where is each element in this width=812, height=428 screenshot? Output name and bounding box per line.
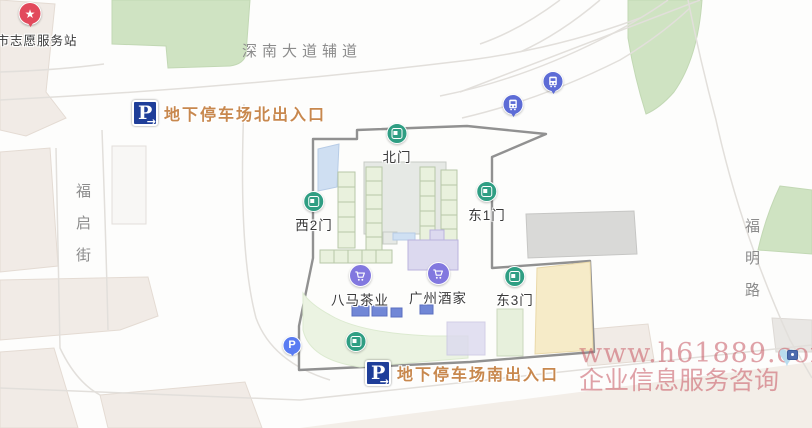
gate-icon <box>476 181 497 202</box>
volunteer-station-label: 市志愿服务站 <box>0 30 78 49</box>
gate-icon <box>346 331 367 352</box>
street-label-fuming-road: 福明路 <box>741 218 762 314</box>
gate-label: 东3门 <box>496 289 534 309</box>
shop-label: 广州酒家 <box>409 287 467 307</box>
volunteer-station-marker[interactable]: ★ <box>19 2 42 25</box>
shop-marker-bama-tea[interactable]: 八马茶业 <box>331 264 389 309</box>
shop-label: 八马茶业 <box>331 289 389 309</box>
heart-inner-badge <box>787 350 798 360</box>
south-parking-entrance-marker[interactable]: P → 地下停车场南出入口 <box>365 360 559 386</box>
parking-p-arrow-icon: P → <box>132 100 158 126</box>
street-label-shennan-avenue: 深南大道辅道 <box>242 40 362 61</box>
gate-marker-west2[interactable]: 西2门 <box>295 191 333 234</box>
gate-label: 西2门 <box>295 214 333 234</box>
heart-icon: ♥ <box>778 342 796 372</box>
parking-letter: P <box>288 337 295 354</box>
shopping-cart-icon <box>349 264 372 287</box>
bus-stop-marker[interactable] <box>543 71 564 92</box>
gate-marker-east1[interactable]: 东1门 <box>468 181 506 224</box>
arrow-right-glyph: → <box>380 376 389 387</box>
street-label-fuqi-street: 福启街 <box>72 183 93 279</box>
bus-stop-icon <box>543 71 564 92</box>
gate-label: 北门 <box>383 146 412 166</box>
south-parking-entrance-label: 地下停车场南出入口 <box>397 361 559 385</box>
volunteer-station-label-wrap[interactable]: 市志愿服务站 <box>0 30 78 49</box>
star-glyph: ★ <box>25 7 36 21</box>
gate-marker-east3[interactable]: 东3门 <box>496 266 534 309</box>
gate-icon <box>387 123 408 144</box>
map-canvas[interactable]: 深南大道辅道 福启街 福明路 ★ 市志愿服务站 P → 地下停车场北出入口 P … <box>0 0 812 428</box>
star-pin-icon: ★ <box>19 2 42 25</box>
gate-marker-north[interactable]: 北门 <box>383 123 412 166</box>
parking-p-circle-icon: P <box>283 336 302 355</box>
shopping-cart-icon <box>427 262 450 285</box>
shop-marker-guangzhou-restaurant[interactable]: 广州酒家 <box>409 262 467 307</box>
gate-label: 东1门 <box>468 204 506 224</box>
gate-marker-south[interactable] <box>346 331 367 352</box>
bus-stop-marker[interactable] <box>503 94 524 115</box>
parking-p-arrow-icon: P → <box>365 360 391 386</box>
arrow-right-glyph: → <box>147 116 156 127</box>
gate-icon <box>303 191 324 212</box>
north-parking-entrance-label: 地下停车场北出入口 <box>164 101 326 125</box>
north-parking-entrance-marker[interactable]: P → 地下停车场北出入口 <box>132 100 326 126</box>
gate-icon <box>504 266 525 287</box>
parking-lot-marker[interactable]: P <box>283 336 302 355</box>
bus-stop-icon <box>503 94 524 115</box>
